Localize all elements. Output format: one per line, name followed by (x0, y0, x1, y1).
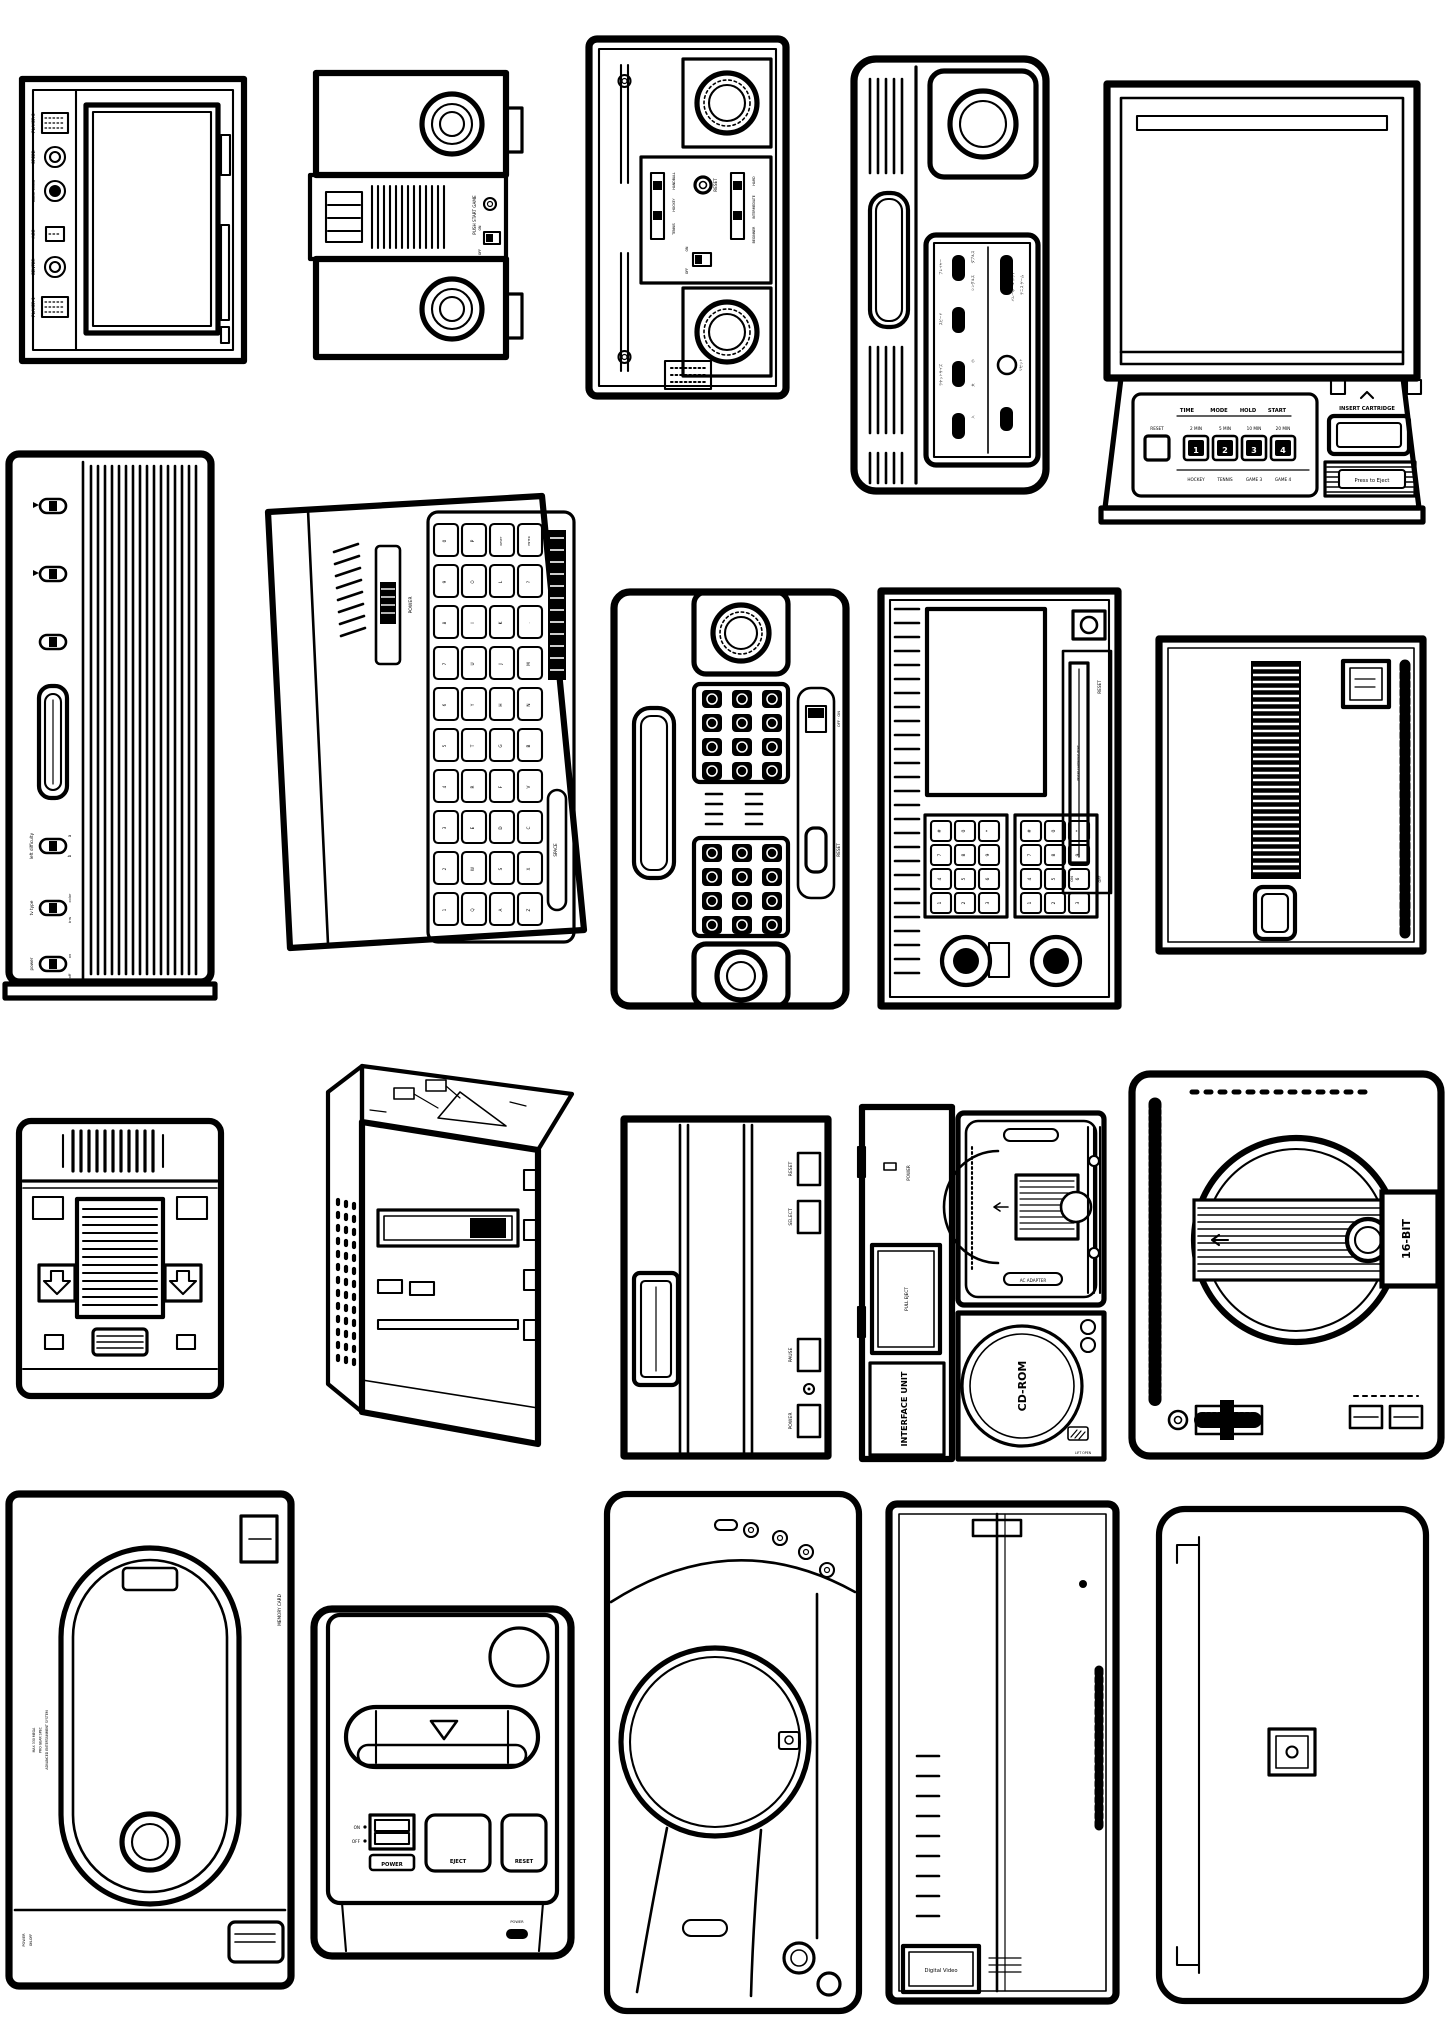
center-knob-icon (45, 257, 65, 277)
top-button-icon (744, 1523, 758, 1537)
power-label: power (29, 957, 34, 970)
small-label: 小 (970, 359, 975, 363)
space-label: SPACE (553, 843, 558, 857)
left-difficulty-label: left difficulty (29, 832, 34, 859)
odyssey-screen (86, 105, 218, 333)
toggle-switch-icon (33, 499, 66, 513)
acc-jack-icon (46, 227, 64, 241)
game-cord-jack-icon (45, 181, 65, 201)
console-poster: PLAYER 2 SPEED GAME CORD ACC CENTER PLAY… (0, 0, 1445, 2044)
push-start-game-label: PUSH START GAME (472, 195, 477, 235)
svg-text:D: D (498, 826, 503, 829)
svg-text:Z: Z (526, 908, 531, 911)
svg-text:6: 6 (985, 877, 991, 880)
svg-text:H: H (498, 703, 503, 706)
tv-type-label: tv type (29, 900, 34, 915)
telstar-console-illustration: HANDBALL HOCKEY TENNIS RESET HARD INTERM… (585, 35, 790, 400)
instruction-diagram-icon (370, 1080, 526, 1126)
center-band (1194, 1200, 1398, 1280)
svg-text:RESET: RESET (499, 536, 503, 545)
membrane-keyboard: 0 9 8 7 6 5 4 3 2 1 P O I U Y T R E W Q … (428, 512, 574, 942)
svg-text:8: 8 (961, 853, 967, 856)
reset-button (1145, 436, 1169, 460)
reset-label: RESET (1097, 680, 1102, 694)
svg-text:P: P (470, 539, 475, 542)
svg-text:L: L (498, 580, 503, 583)
min10-label: 10 MIN (1247, 426, 1262, 431)
phones-jack-icon (1169, 1411, 1187, 1429)
svg-text:M: M (526, 662, 531, 666)
large-label: 大 (970, 383, 975, 387)
svg-text:4: 4 (1027, 877, 1033, 880)
reset-button: RESET (502, 1815, 546, 1871)
interface-unit-panel: INTERFACE UNIT (870, 1363, 944, 1455)
hockey-label: HOCKEY (672, 198, 676, 211)
on-label: ON (685, 246, 689, 252)
svg-text:#: # (937, 829, 943, 833)
svg-text:1: 1 (937, 901, 943, 904)
twin-keypad-console-illustration: OFF · ON RESET (610, 588, 850, 1010)
svg-text:1: 1 (442, 908, 447, 911)
svg-text:I: I (470, 622, 475, 623)
digital-video-label: Digital Video (924, 1968, 957, 1974)
svg-text:N: N (526, 703, 531, 706)
hockey-label: HOCKEY (1187, 477, 1205, 482)
eject-button: EJECT (426, 1815, 490, 1871)
svg-text:0: 0 (961, 829, 967, 832)
volume-slider-icon (1196, 1400, 1262, 1440)
round-button-icon (818, 1973, 840, 1995)
power-switch-icon (884, 1163, 896, 1170)
interface-unit-label: INTERFACE UNIT (899, 1371, 909, 1446)
svg-text:7: 7 (442, 662, 447, 665)
start-game-button-icon (484, 198, 496, 210)
mode-label: MODE (1210, 408, 1228, 414)
hard-label: HARD (752, 176, 756, 186)
reset-label: RESET (713, 178, 718, 192)
doubles-label: ダブルス (970, 251, 975, 264)
speaker-strip-icon (548, 530, 566, 680)
acc-label: ACC (31, 230, 36, 239)
select-label: SELECT (788, 1208, 794, 1225)
player-label: プレイヤー (938, 259, 943, 275)
round-button-icon (784, 1943, 814, 1973)
disc-icon (1068, 1427, 1088, 1440)
svg-text:3: 3 (1075, 901, 1081, 904)
on-label: on (68, 954, 72, 958)
svg-text:3: 3 (442, 826, 447, 829)
control-pad: TIME MODE HOLD START RESET 2 MIN 5 MIN 1… (1133, 394, 1317, 496)
svg-text:Q: Q (470, 908, 475, 912)
svg-text:5: 5 (442, 744, 447, 747)
color-tv-game-illustration: プレイヤー スピード ラケットサイズ ダブルス シングルス 小 大 入 バレーボ… (850, 55, 1050, 495)
vent-grille-icon (870, 79, 902, 483)
svg-text:3: 3 (985, 901, 991, 904)
svg-text:#: # (1027, 829, 1033, 833)
spec-line1-label: MAX 330 MEGA (32, 1727, 36, 1752)
svg-text:Y: Y (470, 703, 475, 707)
svg-text:R: R (470, 785, 475, 788)
a-label: a (67, 834, 72, 837)
svg-text:0: 0 (1051, 829, 1057, 832)
svg-text:ENTER: ENTER (527, 536, 531, 545)
top-button-icon (773, 1531, 787, 1545)
controller-disc-icon (942, 937, 990, 985)
on-label: ON (354, 1825, 360, 1830)
handball-label: HANDBALL (672, 172, 676, 190)
power-button-icon (1073, 611, 1105, 639)
cartridge-slot (77, 1199, 163, 1317)
svg-text:C: C (526, 826, 531, 829)
svg-text:F: F (498, 785, 503, 788)
logo-plate-icon (1269, 1729, 1315, 1775)
striped-cartridge-console-illustration (1155, 635, 1427, 955)
perspective-computer-console-illustration (310, 1050, 600, 1450)
docked-console: AC ADAPTER (944, 1113, 1104, 1305)
side-slot (221, 327, 229, 343)
eject-tray: PULL EJECT (872, 1245, 940, 1353)
switch-icon (410, 1282, 434, 1295)
volleyball-hockey-label: バレーボール ホッケー (1010, 269, 1015, 302)
svg-text:.: . (526, 622, 531, 623)
racket-size-label: ラケットサイズ (938, 363, 943, 386)
toggle-switch-icon (33, 567, 66, 581)
memory-card-label: MEMORY CARD (277, 1594, 282, 1626)
power-led-icon (506, 1929, 528, 1939)
reset-label: リセット (1018, 359, 1023, 372)
min2-label: 2 MIN (1190, 426, 1202, 431)
controller-keypad: # 0 * 7 8 9 4 5 6 1 2 3 (1015, 815, 1097, 917)
off-label: OFF (685, 268, 689, 274)
svg-text:5: 5 (961, 877, 967, 880)
svg-text:7: 7 (1027, 853, 1033, 856)
port-box-icon (229, 1922, 283, 1962)
vent-grille-icon (706, 794, 762, 824)
paddle-knob-icon (683, 288, 771, 376)
ac-adapter-label: AC ADAPTER (1020, 1278, 1047, 1283)
control-panel: プレイヤー スピード ラケットサイズ ダブルス シングルス 小 大 入 バレーボ… (926, 235, 1038, 465)
magnavox-odyssey-illustration: PLAYER 2 SPEED GAME CORD ACC CENTER PLAY… (18, 75, 248, 365)
ridge-panel-icon (91, 466, 196, 974)
game3-label: GAME 3 (1246, 477, 1263, 482)
cartridge-slot-panel: INSERT CARTRIDGE HERE RESET ON OFF (1063, 651, 1111, 893)
reset-label: RESET (836, 843, 841, 857)
on-off-label: ON-OFF (29, 1934, 33, 1946)
vent-dashes-icon (917, 1756, 939, 1916)
cartridge-slot (634, 708, 674, 878)
controller-keypad: # 0 * 7 8 9 4 5 6 1 2 3 (925, 815, 1007, 917)
switch-slot-icon (1350, 1396, 1422, 1428)
svg-text:?: ? (526, 581, 531, 583)
reset-button (806, 828, 826, 872)
home-pong-console-illustration: PUSH START GAME ON OFF (300, 70, 528, 360)
hold-label: HOLD (1240, 408, 1257, 414)
svg-text:9: 9 (985, 853, 991, 856)
svg-text:1: 1 (1193, 445, 1199, 455)
vent-ridges-icon (895, 609, 919, 973)
svg-text:5: 5 (1051, 877, 1057, 880)
reset-button (798, 1153, 820, 1185)
svg-text:2: 2 (1051, 901, 1057, 904)
cd-rom-label: CD-ROM (1016, 1361, 1029, 1412)
stripe-band-icon (1251, 661, 1301, 879)
on-label: ON (1070, 876, 1074, 882)
keypad-grid-icon (694, 684, 788, 782)
power-on-label: 入 (971, 415, 975, 419)
svg-text:X: X (526, 867, 531, 870)
on-label: ON (478, 225, 482, 231)
game-button-4: 4 (1271, 436, 1295, 460)
player2-label: PLAYER 2 (31, 113, 36, 133)
tennis-label: TENNIS (672, 223, 676, 236)
paddle-knob-icon (422, 94, 482, 154)
top-slot (1137, 116, 1387, 130)
side-slot (221, 225, 229, 320)
oval-loop-icon (61, 1548, 239, 1904)
svg-text:6: 6 (442, 703, 447, 706)
svg-text:4: 4 (442, 785, 447, 788)
pause-button (798, 1339, 820, 1371)
cartridge-slot (378, 1210, 518, 1246)
svg-text:T: T (470, 744, 475, 748)
vent-grille-icon (63, 1131, 163, 1171)
off-label: OFF (478, 249, 482, 255)
svg-text:0: 0 (442, 539, 447, 542)
bw-label: b·w (68, 917, 72, 923)
super-famicom-illustration: ON OFF POWER EJECT RESET POWER (310, 1605, 575, 1960)
power-led-label: POWER (510, 1920, 524, 1924)
side-slot (221, 135, 230, 175)
power-label: POWER (788, 1412, 794, 1430)
beginner-label: BEGINNER (752, 226, 756, 243)
b-label: b (67, 854, 72, 857)
svg-text:2: 2 (1222, 445, 1228, 455)
svg-text:4: 4 (1280, 445, 1286, 455)
vent-grille-icon (372, 186, 444, 248)
game-button-3: 3 (1242, 436, 1266, 460)
mega-drive-16bit-illustration: 16-BIT (1128, 1070, 1445, 1460)
reset-label: RESET (1150, 426, 1164, 431)
speed-knob-icon (45, 147, 65, 167)
cartridge-slot (634, 1273, 678, 1385)
svg-text:9: 9 (1075, 853, 1081, 856)
power-switch-icon (484, 232, 500, 244)
controller-knob-icon (694, 592, 788, 674)
intermediate-label: INTERMEDIATE (752, 195, 756, 219)
power-label: POWER (906, 1165, 911, 1181)
arrow-down-icon (165, 1265, 201, 1301)
svg-text:9: 9 (442, 580, 447, 583)
membrane-keyboard-console-illustration: POWER 0 9 8 7 6 5 4 3 2 1 P O I U Y T R … (230, 490, 590, 955)
cd-i-tower-illustration: Digital Video (885, 1500, 1120, 2005)
spec-line3-label: ADVANCED ENTERTAINMENT SYSTEM (45, 1710, 49, 1769)
toggle-switch-icon (40, 635, 66, 649)
led-icon (1079, 1580, 1087, 1588)
svg-text:G: G (498, 744, 503, 747)
game-button-2: 2 (1213, 436, 1237, 460)
svg-text:7: 7 (937, 853, 943, 856)
svg-text:J: J (498, 663, 503, 665)
svg-text:8: 8 (1051, 853, 1057, 856)
svg-text:2: 2 (442, 867, 447, 870)
pull-eject-label: PULL EJECT (904, 1287, 909, 1311)
side-slot (870, 193, 908, 327)
press-to-eject-label: Press to Eject (1355, 478, 1390, 484)
spec-line2-label: PRO GEAR SPEC (39, 1726, 43, 1753)
power-label: POWER (22, 1933, 26, 1947)
round-button-icon (122, 1814, 178, 1870)
center-label: CENTER (31, 259, 36, 276)
game4-label: GAME 4 (1275, 477, 1292, 482)
svg-text:4: 4 (937, 877, 943, 880)
color-label: color (68, 893, 72, 902)
svg-text:A: A (498, 908, 503, 911)
memory-card-slot (241, 1516, 277, 1562)
svg-text:3: 3 (1251, 445, 1257, 455)
atari-2600-illustration: left difficulty a b tv type color b·w po… (5, 450, 215, 1000)
bottom-slot (1255, 887, 1295, 939)
cd-player: CD-ROM LIFT OPEN (958, 1313, 1104, 1459)
svg-text:8: 8 (442, 621, 447, 624)
thin-slot (378, 1320, 518, 1329)
cd-rom-interface-unit-illustration: POWER PULL EJECT INTERFACE UNIT AC ADAPT… (858, 1103, 1108, 1463)
triangle-marker-icon (431, 1721, 457, 1739)
channel-knob-icon (930, 71, 1036, 177)
off-label: OFF (352, 1839, 361, 1844)
svg-text:*: * (985, 829, 991, 832)
ridge-block-icon (326, 192, 362, 242)
controller-knob-icon (694, 944, 788, 1006)
svg-text:*: * (1075, 829, 1081, 832)
arrow-down-icon (39, 1265, 75, 1301)
controller-disc-icon (1032, 937, 1080, 985)
famicom-illustration (15, 1117, 225, 1400)
power-label: POWER (381, 1862, 402, 1868)
speed-label: スピード (938, 313, 943, 326)
keypad-grid-icon (694, 838, 788, 936)
cd-lid-icon (621, 1648, 809, 1836)
player1-jack-icon (42, 297, 68, 317)
game-cord-label: GAME CORD (32, 180, 36, 203)
svg-text:6: 6 (1075, 877, 1081, 880)
game-button-1: 1 (1184, 436, 1208, 460)
start-label: START (1268, 408, 1287, 414)
top-button-icon (799, 1545, 813, 1559)
tennis-game-label: テニス ゲーム (1019, 275, 1024, 295)
paddle-knob-icon (683, 59, 771, 147)
time-label: TIME (1180, 408, 1195, 414)
player2-jack-icon (42, 113, 68, 133)
svg-text:S: S (498, 867, 503, 870)
power-slider-icon (376, 546, 400, 664)
label-plate (1343, 661, 1389, 707)
front-face (362, 1122, 538, 1444)
top-button-icon (820, 1563, 834, 1577)
storage-window (927, 609, 1045, 795)
pause-label: PAUSE (788, 1348, 794, 1363)
speed-label: SPEED (31, 150, 36, 164)
power-label: POWER (408, 596, 414, 614)
master-system-illustration: RESET SELECT PAUSE POWER (620, 1115, 832, 1460)
svg-text:B: B (526, 744, 531, 747)
lift-open-label: LIFT OPEN (1075, 1451, 1092, 1455)
select-button (798, 1201, 820, 1233)
16bit-cartridge-tab: 16-BIT (1382, 1192, 1438, 1286)
svg-text:K: K (498, 621, 503, 624)
paddle-knob-icon (422, 279, 482, 339)
minimal-box-console-illustration (1155, 1505, 1430, 2005)
tennis-label: TENNIS (1216, 477, 1233, 482)
caret-up-icon (1361, 392, 1373, 398)
neo-geo-illustration: MEMORY CARD MAX 330 MEGA PRO GEAR SPEC A… (5, 1490, 295, 1990)
switch-icon (378, 1280, 402, 1293)
off-on-label: OFF · ON (837, 711, 841, 727)
cartridge-keypad-console-illustration: INSERT CARTRIDGE HERE RESET ON OFF # 0 *… (877, 587, 1122, 1010)
cassette-vision-console-illustration: TIME MODE HOLD START RESET 2 MIN 5 MIN 1… (1095, 80, 1430, 530)
svg-text:V: V (526, 785, 531, 788)
round-recess-icon (490, 1628, 548, 1686)
digital-video-cartridge: Digital Video (903, 1946, 979, 1992)
min5-label: 5 MIN (1219, 426, 1231, 431)
player1-label: PLAYER 1 (31, 297, 36, 317)
vent-hatch-icon (334, 544, 365, 636)
cartridge-slot (346, 1707, 538, 1767)
reset-label: RESET (515, 1859, 534, 1865)
min20-label: 20 MIN (1276, 426, 1291, 431)
singles-label: シングルス (970, 275, 975, 291)
insert-cartridge-label: INSERT CARTRIDGE (1339, 406, 1395, 412)
insert-cartridge-here-label: INSERT CARTRIDGE HERE (1076, 745, 1080, 781)
svg-text:U: U (470, 662, 475, 665)
svg-text:W: W (470, 867, 475, 871)
round-cd-console-illustration (603, 1490, 863, 2015)
off-label: off (68, 973, 72, 978)
power-switch (798, 1405, 820, 1437)
svg-text:E: E (470, 826, 475, 829)
reset-label: RESET (788, 1161, 794, 1176)
eject-label: EJECT (450, 1859, 467, 1865)
switch-panel: OFF · ON RESET (798, 688, 841, 898)
game-select-panel: HANDBALL HOCKEY TENNIS RESET HARD INTERM… (641, 157, 771, 283)
svg-text:1: 1 (1027, 901, 1033, 904)
eject-lever-icon (93, 1329, 147, 1355)
svg-text:O: O (470, 580, 475, 584)
16-bit-label: 16-BIT (1400, 1219, 1413, 1259)
svg-text:2: 2 (961, 901, 967, 904)
power-switch: POWER (370, 1815, 414, 1870)
cartridge-slot (39, 686, 67, 798)
